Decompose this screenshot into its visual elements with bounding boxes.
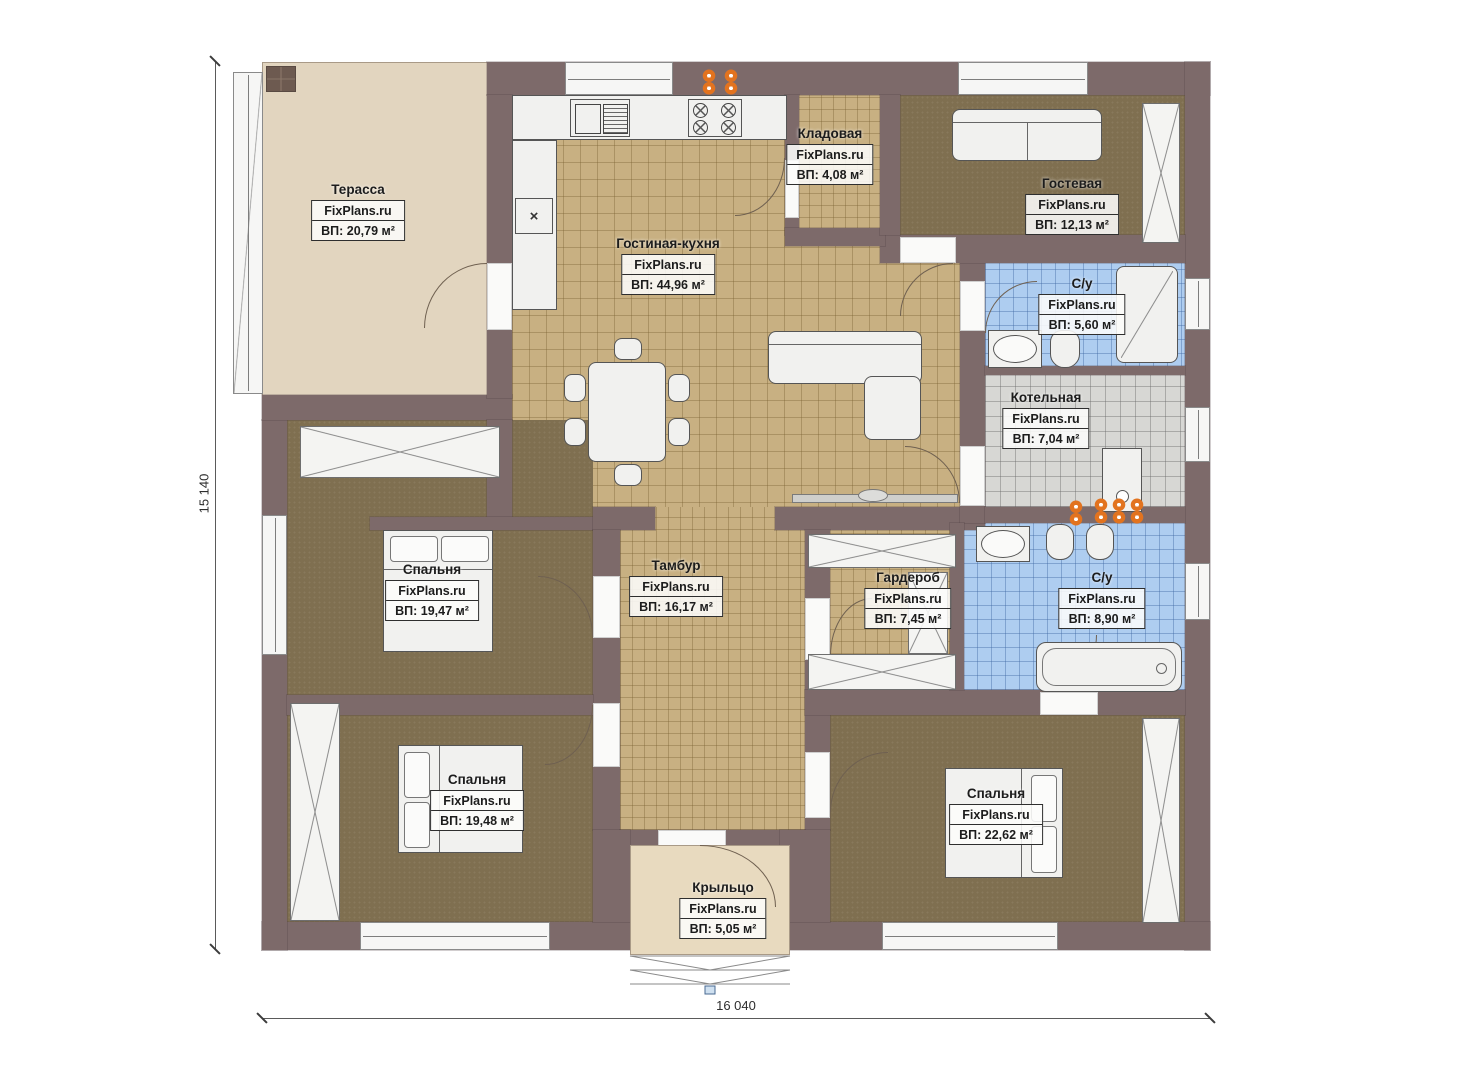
area: ВП: 44,96 м² xyxy=(622,274,714,294)
area: ВП: 22,62 м² xyxy=(950,824,1042,844)
terrace-ramp xyxy=(233,72,263,394)
area: ВП: 20,79 м² xyxy=(312,220,404,240)
dimension-line-horizontal xyxy=(262,1018,1210,1019)
door-guest xyxy=(900,237,956,263)
dining-chair xyxy=(668,418,690,446)
sofa-chaise xyxy=(864,376,921,440)
dining-chair xyxy=(564,418,586,446)
bidet xyxy=(1086,524,1114,560)
door-wardrobe xyxy=(805,598,830,660)
room-label-bedroom-bottom-right: Спальня FixPlans.ruВП: 22,62 м² xyxy=(949,786,1043,845)
area: ВП: 16,17 м² xyxy=(630,596,722,616)
closet-bedroom-bottom-left xyxy=(290,703,340,921)
kitchen-sink xyxy=(570,99,630,137)
brand: FixPlans.ru xyxy=(1003,409,1088,428)
closet-guest xyxy=(1142,103,1180,243)
brand: FixPlans.ru xyxy=(680,899,765,918)
window-bath-bottom xyxy=(1185,563,1210,620)
room-label-bedroom-left: Спальня FixPlans.ruВП: 19,47 м² xyxy=(385,562,479,621)
wall-porch-left xyxy=(593,830,630,922)
dimension-line-vertical xyxy=(215,62,216,950)
washbasin xyxy=(993,335,1037,363)
room-label-living-kitchen: Гостиная-кухня FixPlans.ruВП: 44,96 м² xyxy=(616,236,719,295)
brand: FixPlans.ru xyxy=(622,255,714,274)
vent-marker xyxy=(723,69,739,95)
wall-bedroom-stub xyxy=(370,517,593,530)
brand: FixPlans.ru xyxy=(787,145,872,164)
room-label-bedroom-bottom-left: Спальня FixPlans.ruВП: 19,48 м² xyxy=(430,772,524,831)
sink-basin xyxy=(575,104,601,134)
kitchen-stove xyxy=(688,99,742,137)
wall-vestibule-left xyxy=(593,530,620,830)
window-bedroom-left xyxy=(262,515,287,655)
kitchen-hob-icon: × xyxy=(515,198,553,234)
porch-steps xyxy=(628,953,792,995)
vent-marker xyxy=(1129,498,1145,524)
area: ВП: 12,13 м² xyxy=(1026,214,1118,234)
room-label-bathroom-top: С/у FixPlans.ruВП: 5,60 м² xyxy=(1038,276,1125,335)
window-bath-top xyxy=(1185,278,1210,330)
sink-drainer xyxy=(603,104,628,134)
area: ВП: 7,45 м² xyxy=(865,608,950,628)
wall-boiler-bottom xyxy=(985,507,1185,523)
vestibule-floor xyxy=(620,507,805,830)
area: ВП: 7,04 м² xyxy=(1003,428,1088,448)
dining-chair xyxy=(614,338,642,360)
door-bathroom-top xyxy=(960,281,985,331)
area: ВП: 19,48 м² xyxy=(431,810,523,830)
area: ВП: 5,60 м² xyxy=(1039,314,1124,334)
wall-terrace-right xyxy=(487,95,512,398)
dining-table xyxy=(588,362,666,462)
brand: FixPlans.ru xyxy=(312,201,404,220)
wall-pantry-bottom xyxy=(785,228,885,246)
door-bedroom-bottom-left xyxy=(593,703,620,767)
kitchen-counter-top xyxy=(512,95,787,140)
brand: FixPlans.ru xyxy=(865,589,950,608)
hob-glyph: × xyxy=(530,208,539,225)
floor-plan: × xyxy=(0,0,1474,1080)
dining-chair xyxy=(668,374,690,402)
wall-living-bottom-a xyxy=(593,507,655,530)
brand: FixPlans.ru xyxy=(431,791,523,810)
room-label-terrace: Терасса FixPlans.ruВП: 20,79 м² xyxy=(311,182,405,241)
bathtub-drain xyxy=(1156,663,1167,674)
closet-wardrobe-bottom xyxy=(808,654,956,690)
area: ВП: 19,47 м² xyxy=(386,600,478,620)
area: ВП: 4,08 м² xyxy=(787,164,872,184)
toilet xyxy=(1046,524,1074,560)
window-guest xyxy=(958,62,1088,95)
vent-marker xyxy=(1111,498,1127,524)
brand: FixPlans.ru xyxy=(1059,589,1144,608)
dining-chair xyxy=(564,374,586,402)
brand: FixPlans.ru xyxy=(1026,195,1118,214)
closet-bedroom-bottom-right xyxy=(1142,718,1180,923)
room-label-boiler: Котельная FixPlans.ruВП: 7,04 м² xyxy=(1002,390,1089,449)
dining-chair xyxy=(614,464,642,486)
area: ВП: 8,90 м² xyxy=(1059,608,1144,628)
vent-marker xyxy=(1068,500,1084,526)
wall-under-terrace xyxy=(262,395,512,420)
dimension-width: 16 040 xyxy=(686,998,786,1013)
door-bedroom-left xyxy=(593,576,620,638)
window-kitchen xyxy=(565,62,673,95)
washbasin xyxy=(981,530,1025,558)
brand: FixPlans.ru xyxy=(1039,295,1124,314)
window-boiler xyxy=(1185,407,1210,462)
dimension-height: 15 140 xyxy=(197,462,212,526)
tv xyxy=(858,489,888,502)
door-bedroom-bottom-right xyxy=(805,752,830,818)
area: ВП: 5,05 м² xyxy=(680,918,765,938)
room-label-pantry: Кладовая FixPlans.ruВП: 4,08 м² xyxy=(786,126,873,185)
closet-wardrobe-top xyxy=(808,534,956,568)
bathtub xyxy=(1036,642,1182,692)
window-bedroom-bottom-left xyxy=(360,922,550,950)
brand: FixPlans.ru xyxy=(630,577,722,596)
room-label-wardrobe: Гардероб FixPlans.ruВП: 7,45 м² xyxy=(864,570,951,629)
door-terrace xyxy=(487,263,512,330)
vent-marker xyxy=(1093,498,1109,524)
room-label-vestibule: Тамбур FixPlans.ruВП: 16,17 м² xyxy=(629,558,723,617)
terrace-column xyxy=(266,66,296,92)
guest-sofa xyxy=(952,109,1102,161)
toilet xyxy=(1050,330,1080,368)
room-label-porch: Крыльцо FixPlans.ruВП: 5,05 м² xyxy=(679,880,766,939)
door-bathroom-bottom xyxy=(1040,692,1098,715)
wall-bedroom3-top xyxy=(805,690,1185,715)
room-label-bathroom-bottom: С/у FixPlans.ruВП: 8,90 м² xyxy=(1058,570,1145,629)
brand: FixPlans.ru xyxy=(950,805,1042,824)
closet-bedroom-left xyxy=(300,426,500,478)
room-label-guest: Гостевая FixPlans.ruВП: 12,13 м² xyxy=(1025,176,1119,235)
door-boiler xyxy=(960,446,985,506)
wall-right xyxy=(1185,62,1210,950)
wall-pantry-guest xyxy=(880,95,900,235)
vent-marker xyxy=(701,69,717,95)
brand: FixPlans.ru xyxy=(386,581,478,600)
wall-left xyxy=(262,420,287,950)
window-bedroom-bottom-right xyxy=(882,922,1058,950)
